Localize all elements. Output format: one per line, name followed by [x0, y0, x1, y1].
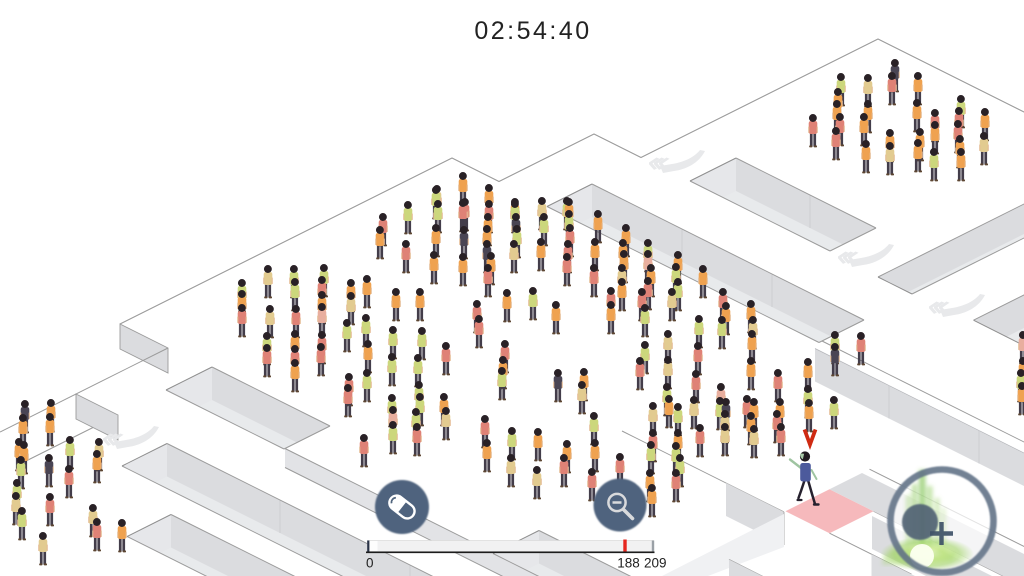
- svg-text:209: 209: [644, 556, 667, 571]
- svg-text:0: 0: [366, 556, 374, 571]
- svg-text:02:54:40: 02:54:40: [474, 17, 591, 45]
- svg-text:188: 188: [617, 556, 640, 571]
